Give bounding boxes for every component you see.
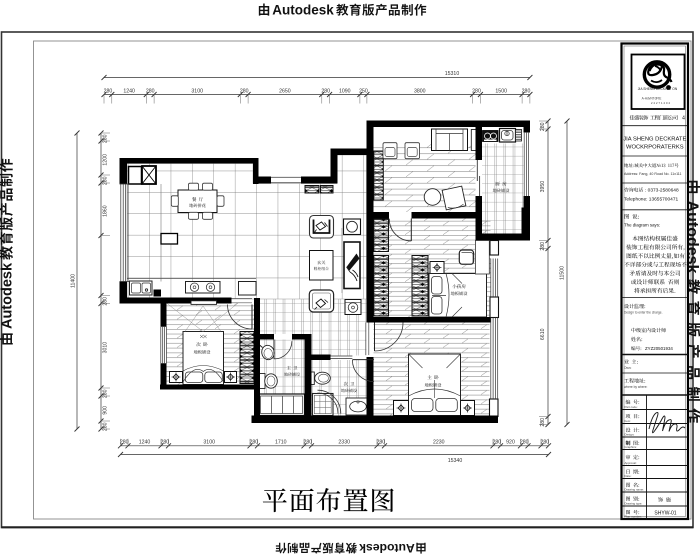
svg-text:2 4 2 7 1 4 0 4: 2 4 2 7 1 4 0 4 (651, 101, 671, 105)
svg-text:1240: 1240 (123, 88, 135, 94)
svg-text:Plan number:: Plan number: (625, 515, 642, 519)
svg-text:Own:: Own: (624, 366, 632, 370)
svg-text:280: 280 (492, 440, 501, 446)
svg-text:1090: 1090 (339, 88, 351, 94)
svg-text:11400: 11400 (71, 274, 77, 288)
svg-text:2330: 2330 (338, 440, 350, 446)
svg-text:15310: 15310 (445, 71, 460, 77)
svg-text:Drawing type:: Drawing type: (625, 502, 643, 506)
svg-text:The diagram says:: The diagram says: (624, 223, 660, 228)
svg-text:Telephone: 13655700471: Telephone: 13655700471 (624, 197, 678, 203)
svg-text:280: 280 (120, 440, 129, 446)
svg-text:Address: Fang, 40 Road No. 11x: Address: Fang, 40 Road No. 11x111 (624, 172, 682, 176)
svg-text:280: 280 (146, 88, 155, 94)
svg-text:SHYW-01: SHYW-01 (654, 511, 676, 517)
svg-text:280: 280 (249, 440, 258, 446)
svg-text:1200: 1200 (103, 154, 109, 166)
svg-text:280: 280 (303, 440, 312, 446)
svg-text:Autodesk: Autodesk (0, 262, 16, 329)
svg-text:: 0373-2580648: : 0373-2580648 (645, 188, 679, 194)
svg-text:Design:: Design: (625, 433, 635, 437)
svg-text:280: 280 (103, 134, 109, 143)
svg-text:4: 4 (682, 116, 685, 122)
svg-text:3950: 3950 (540, 181, 546, 193)
svg-text:2230: 2230 (433, 440, 445, 446)
svg-text:280: 280 (103, 176, 109, 185)
svg-text:280: 280 (103, 297, 109, 306)
svg-text:3100: 3100 (191, 88, 203, 94)
svg-text:Autodesk: Autodesk (359, 541, 415, 555)
svg-text:280: 280 (522, 88, 531, 94)
svg-text:2650: 2650 (279, 88, 291, 94)
svg-text:Graphics:: Graphics: (625, 445, 638, 449)
svg-text:1240: 1240 (139, 440, 151, 446)
svg-text:Autodesk: Autodesk (272, 3, 334, 18)
svg-text:280: 280 (520, 440, 529, 446)
svg-text:1710: 1710 (275, 440, 287, 446)
svg-text:280: 280 (540, 418, 546, 427)
svg-text:Item:: Item: (625, 419, 632, 423)
svg-text:ZYZ20501934: ZYZ20501934 (645, 346, 673, 351)
svg-text:Design to enter the charge.: Design to enter the charge. (624, 311, 663, 315)
svg-text:JIA SHENG DECKRATE: JIA SHENG DECKRATE (623, 137, 686, 143)
svg-text:WOCKRPORATERKS: WOCKRPORATERKS (626, 145, 684, 151)
svg-text:280: 280 (472, 88, 481, 94)
svg-text:Part code:: Part code: (625, 405, 638, 409)
svg-text:11500: 11500 (560, 266, 566, 280)
svg-text:280: 280 (540, 440, 549, 446)
svg-text:3010: 3010 (103, 342, 109, 354)
svg-text:3800: 3800 (414, 88, 426, 94)
svg-text:Approval:: Approval: (625, 461, 637, 465)
svg-text:920: 920 (506, 440, 515, 446)
svg-text:6610: 6610 (540, 328, 546, 340)
svg-text:280: 280 (103, 422, 109, 431)
svg-text:280: 280 (240, 88, 249, 94)
svg-text:1500: 1500 (495, 88, 507, 94)
svg-text:900: 900 (103, 406, 109, 415)
svg-text:JIA SHENG DECKRAT ON: JIA SHENG DECKRAT ON (638, 87, 678, 91)
svg-text:1860: 1860 (103, 205, 109, 217)
svg-text:Drawing name:: Drawing name: (625, 488, 645, 492)
svg-text:280: 280 (540, 122, 546, 131)
svg-text:3100: 3100 (203, 440, 215, 446)
svg-text:280: 280 (376, 440, 385, 446)
svg-text:280: 280 (160, 440, 169, 446)
svg-text:280: 280 (103, 389, 109, 398)
svg-text:15340: 15340 (448, 458, 463, 464)
svg-text:280: 280 (321, 88, 330, 94)
svg-text:where by where:: where by where: (624, 385, 648, 389)
svg-text:Date:: Date: (625, 474, 632, 478)
svg-text:280: 280 (104, 88, 113, 94)
svg-text:280: 280 (540, 242, 546, 251)
svg-text:250: 250 (359, 88, 368, 94)
